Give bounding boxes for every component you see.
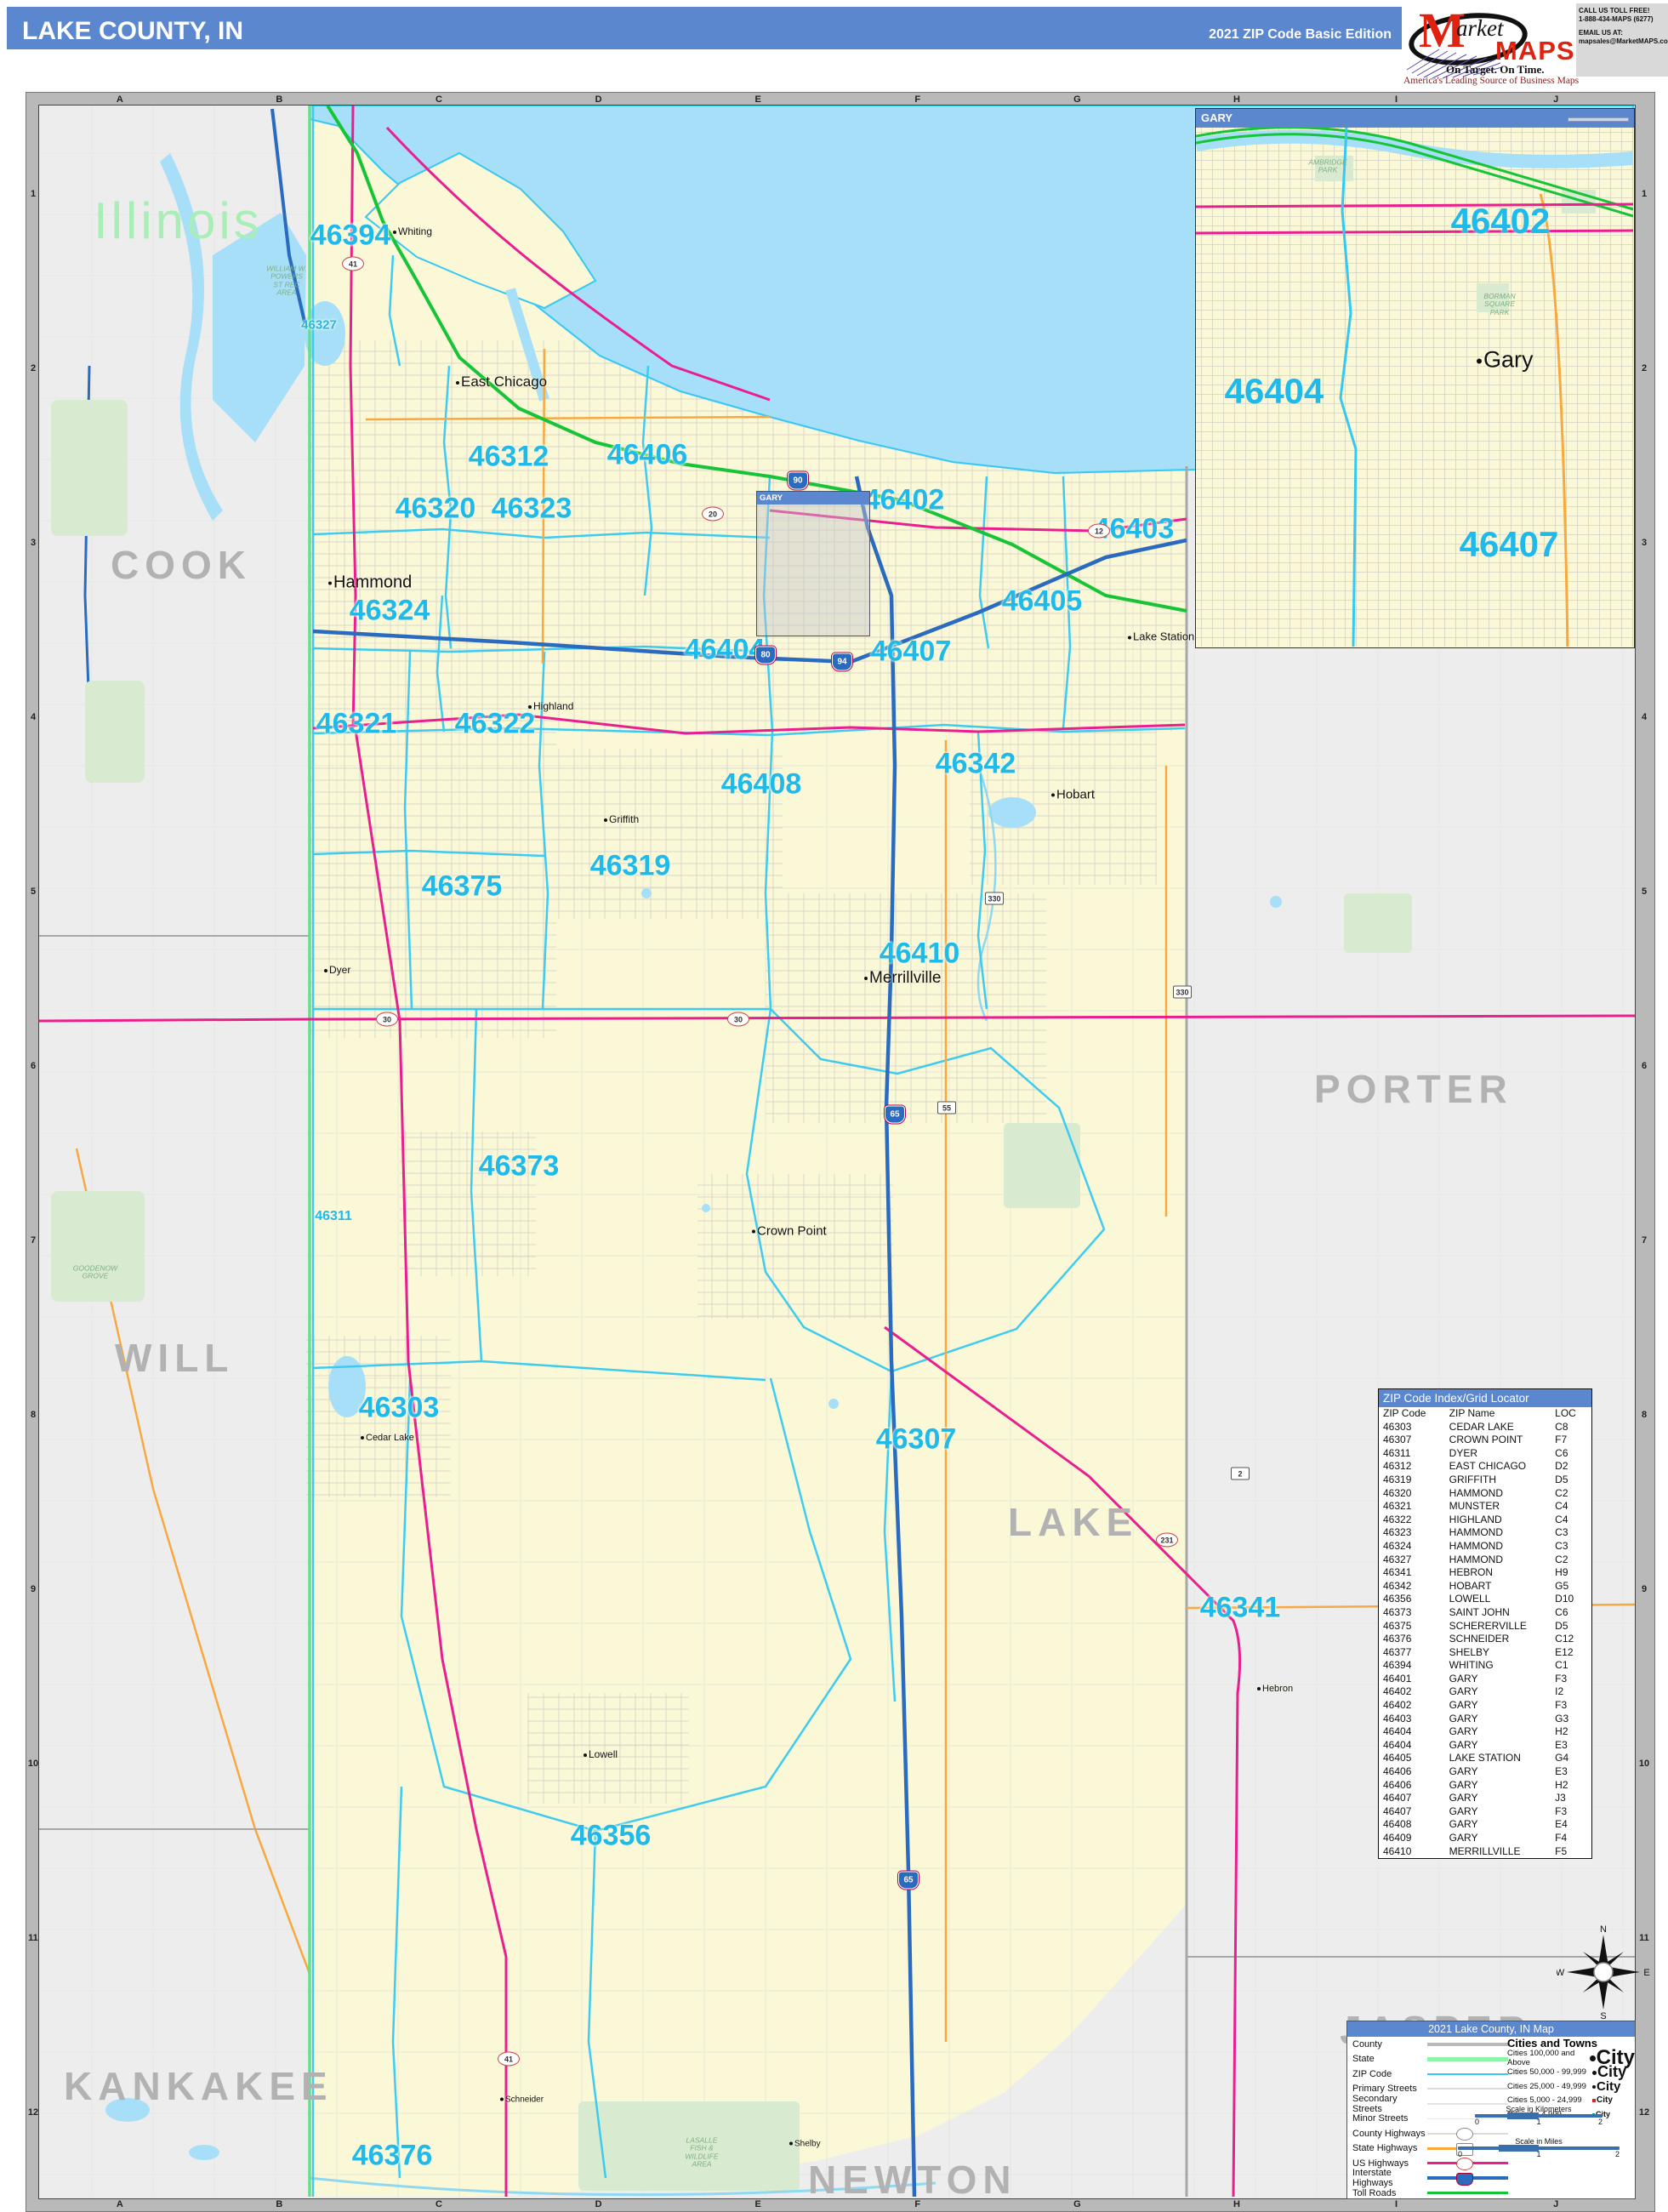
compass-e: E — [1643, 1968, 1649, 1978]
us-route-icon: 20 — [702, 507, 724, 522]
city-dot-icon — [789, 2142, 793, 2146]
zip-code-label: 46402 — [864, 484, 945, 517]
legend-state-hwy: State Highways — [1352, 2143, 1427, 2153]
state-line-icon — [1427, 2057, 1508, 2061]
logo-subtitle: America's Leading Source of Business Map… — [1403, 76, 1579, 86]
gary-inset-map: GARY 464024640446407 AMBRIDGE PARKBORMAN… — [1195, 108, 1635, 648]
city-label: Highland — [528, 700, 573, 712]
grid-number: 6 — [1634, 978, 1654, 1153]
city-label: Hammond — [328, 573, 412, 593]
city-dot-icon — [1477, 358, 1482, 363]
city-label: Dyer — [324, 964, 350, 976]
contact-email-label: EMAIL US AT: — [1579, 29, 1668, 37]
compass-rose: N S W E — [1557, 1924, 1650, 2020]
grid-letter: C — [359, 2198, 519, 2211]
table-row: 46406 GARY E3 — [1379, 1765, 1591, 1779]
inset-park-label: BORMAN SQUARE PARK — [1483, 293, 1515, 316]
zip-code-label: 46319 — [590, 850, 671, 883]
zip-code-label: 46341 — [1200, 1592, 1281, 1625]
grid-letter: A — [40, 2198, 200, 2211]
grid-letter: H — [1157, 2198, 1317, 2211]
city-dot-icon — [1257, 1687, 1261, 1690]
city-dot-icon — [324, 969, 327, 972]
table-row: 46377 SHELBY E12 — [1379, 1646, 1591, 1660]
interstate-shield-icon: 65 — [898, 1872, 919, 1890]
inset-title-bar: GARY — [1196, 109, 1634, 128]
table-row: 46324 HAMMOND C3 — [1379, 1540, 1591, 1554]
table-row: 46373 SAINT JOHN C6 — [1379, 1606, 1591, 1620]
grid-letter: D — [519, 2198, 679, 2211]
zip-code-label: 46321 — [316, 708, 397, 741]
table-row: 46322 HIGHLAND C4 — [1379, 1514, 1591, 1527]
scalebar-mi: Scale in Miles 012 — [1458, 2137, 1620, 2158]
legend-county: County — [1352, 2039, 1427, 2050]
zip-code-label: 46406 — [607, 439, 688, 472]
city-label: Lake Station — [1128, 630, 1194, 643]
table-row: 46341 HEBRON H9 — [1379, 1566, 1591, 1580]
park-label: GOODENOW GROVE — [73, 1265, 117, 1281]
zip-code-label: 46373 — [479, 1150, 560, 1183]
grid-letter: B — [200, 2198, 360, 2211]
legend-toll: Toll Roads — [1352, 2188, 1427, 2198]
city-dot-icon — [752, 1230, 755, 1234]
county-line-icon — [1427, 2043, 1508, 2046]
grid-number: 6 — [26, 978, 40, 1153]
grid-letter: H — [1157, 93, 1317, 106]
table-row: 46404 GARY H2 — [1379, 1725, 1591, 1739]
table-row: 46303 CEDAR LAKE C8 — [1379, 1421, 1591, 1434]
inset-city-label: Gary — [1477, 347, 1534, 373]
city-dot-icon — [393, 231, 396, 234]
gary-callout-title: GARY — [757, 492, 869, 505]
city-dot-icon — [604, 818, 607, 822]
page-title: LAKE COUNTY, IN — [22, 17, 243, 46]
inset-title: GARY — [1201, 111, 1232, 124]
county-hwy-icon — [1427, 2133, 1508, 2135]
table-row: 46402 GARY F3 — [1379, 1699, 1591, 1713]
zip-line-icon — [1427, 2073, 1508, 2075]
grid-number: 2 — [1634, 281, 1654, 455]
city-label: Lowell — [584, 1748, 618, 1760]
cities-25k-sample: City — [1592, 2079, 1620, 2094]
grid-letter: C — [359, 93, 519, 106]
zip-code-label: 46323 — [492, 493, 572, 526]
zip-index-title: ZIP Code Index/Grid Locator — [1379, 1389, 1591, 1407]
city-dot-icon — [528, 705, 532, 709]
state-route-icon: 330 — [985, 892, 1004, 905]
zip-index-table: ZIP Code Index/Grid Locator ZIP Code ZIP… — [1378, 1388, 1592, 1859]
edition-label: 2021 ZIP Code Basic Edition — [1209, 27, 1392, 43]
grid-number: 5 — [26, 804, 40, 978]
city-label: Merrillville — [864, 969, 941, 988]
state-route-icon: 330 — [1173, 986, 1192, 999]
grid-numbers-left: 123456789101112 — [26, 106, 40, 2199]
scalebar-km-bar — [1475, 2114, 1603, 2118]
contact-phone: 1-888-434-MAPS (6277) — [1579, 15, 1668, 24]
grid-number: 10 — [26, 1676, 40, 1850]
table-row: 46404 GARY E3 — [1379, 1739, 1591, 1753]
zip-index-header: ZIP Code ZIP Name LOC — [1379, 1407, 1591, 1421]
zip-code-label: 46312 — [469, 441, 549, 474]
grid-letters-top: ABCDEFGHIJ — [40, 93, 1636, 106]
table-row: 46375 SCHERERVILLE D5 — [1379, 1620, 1591, 1633]
grid-number: 12 — [26, 2025, 40, 2199]
legend-county-hwy: County Highways — [1352, 2129, 1427, 2139]
grid-letter: F — [838, 93, 998, 106]
city-label: Hebron — [1257, 1684, 1293, 1694]
table-row: 46321 MUNSTER C4 — [1379, 1500, 1591, 1514]
city-dot-icon — [1128, 636, 1131, 639]
city-label: Crown Point — [752, 1224, 827, 1239]
inset-park-label: AMBRIDGE PARK — [1308, 159, 1346, 175]
zip-code-label: 46375 — [422, 870, 503, 904]
city-label: Shelby — [789, 2140, 821, 2149]
zip-code-label: 46303 — [359, 1392, 440, 1425]
gary-inset-callout: GARY — [756, 491, 870, 636]
table-row: 46320 HAMMOND C2 — [1379, 1487, 1591, 1501]
interstate-shield-icon: 90 — [788, 472, 808, 490]
grid-number: 10 — [1634, 1676, 1654, 1850]
map-legend: 2021 Lake County, IN Map County State ZI… — [1346, 2021, 1636, 2199]
table-row: 46312 EAST CHICAGO D2 — [1379, 1460, 1591, 1474]
city-label: Hobart — [1051, 788, 1095, 802]
city-dot-icon — [361, 1436, 364, 1440]
zip-code-label: 46376 — [352, 2140, 433, 2173]
grid-letter: F — [838, 2198, 998, 2211]
legend-zip: ZIP Code — [1352, 2069, 1427, 2079]
table-row: 46319 GRIFFITH D5 — [1379, 1474, 1591, 1487]
table-row: 46401 GARY F3 — [1379, 1673, 1591, 1686]
primary-line-icon — [1427, 2088, 1508, 2089]
grid-number: 9 — [26, 1502, 40, 1676]
grid-letter: D — [519, 93, 679, 106]
grid-number: 9 — [1634, 1502, 1654, 1676]
grid-number: 1 — [1634, 106, 1654, 281]
legend-minor: Minor Streets — [1352, 2113, 1427, 2124]
legend-us-hwy: US Highways — [1352, 2158, 1427, 2169]
grid-number: 12 — [1634, 2025, 1654, 2199]
table-row: 46405 LAKE STATION G4 — [1379, 1752, 1591, 1765]
cities-5k-label: Cities 5,000 - 24,999 — [1507, 2095, 1592, 2105]
grid-number: 1 — [26, 106, 40, 281]
state-route-icon: 2 — [1231, 1468, 1250, 1480]
grid-number: 2 — [26, 281, 40, 455]
grid-letter: B — [200, 93, 360, 106]
cities-25k-label: Cities 25,000 - 49,999 — [1507, 2082, 1592, 2091]
zip-index-rows: 46303 CEDAR LAKE C8 46307 CROWN POINT F7… — [1379, 1421, 1591, 1859]
grid-letter: G — [998, 2198, 1158, 2211]
park-label: WILLIAM W. POWERS ST REC AREA — [266, 265, 306, 296]
us-route-icon: 30 — [727, 1012, 749, 1027]
interstate-shield-icon: 80 — [755, 647, 776, 664]
grid-number: 5 — [1634, 804, 1654, 978]
cities-100k-label: Cities 100,000 and Above — [1507, 2049, 1590, 2067]
table-row: 46307 CROWN POINT F7 — [1379, 1434, 1591, 1447]
zip-code-label: 46327 — [301, 318, 337, 333]
zip-code-label: 46410 — [880, 938, 960, 971]
zip-code-label: 46324 — [350, 595, 430, 628]
inset-zip-label: 46404 — [1225, 371, 1324, 412]
col-loc: LOC — [1555, 1407, 1587, 1421]
us-route-icon: 41 — [342, 257, 364, 271]
table-row: 46408 GARY E4 — [1379, 1818, 1591, 1832]
scalebar-mi-bar — [1458, 2146, 1620, 2150]
inset-zip-label: 46407 — [1460, 524, 1559, 565]
cities-5k-sample: City — [1592, 2095, 1613, 2105]
col-zip-code: ZIP Code — [1383, 1407, 1449, 1421]
interstate-shield-icon: 65 — [885, 1106, 905, 1124]
city-label: East Chicago — [456, 373, 547, 391]
compass-n: N — [1600, 1924, 1607, 1935]
table-row: 46311 DYER C6 — [1379, 1447, 1591, 1461]
us-hwy-icon — [1427, 2162, 1508, 2164]
zip-code-label: 46307 — [876, 1423, 957, 1457]
city-dot-icon — [500, 2098, 504, 2101]
scalebar-km: Scale in Kilometers 012 — [1475, 2105, 1603, 2126]
table-row: 46407 GARY J3 — [1379, 1792, 1591, 1805]
grid-letter: G — [998, 93, 1158, 106]
zip-code-label: 46356 — [571, 1820, 652, 1853]
table-row: 46342 HOBART G5 — [1379, 1580, 1591, 1593]
grid-number: 4 — [26, 630, 40, 804]
table-row: 46410 MERRILLVILLE F5 — [1379, 1845, 1591, 1859]
legend-title: 2021 Lake County, IN Map — [1347, 2021, 1635, 2037]
legend-state: State — [1352, 2054, 1427, 2064]
grid-number: 8 — [26, 1327, 40, 1502]
zip-code-label: 46407 — [871, 636, 952, 669]
us-route-icon: 12 — [1088, 524, 1110, 539]
table-row: 46323 HAMMOND C3 — [1379, 1526, 1591, 1540]
grid-number: 8 — [1634, 1327, 1654, 1502]
city-dot-icon — [584, 1753, 587, 1757]
table-row: 46403 GARY G3 — [1379, 1713, 1591, 1726]
zip-code-label: 46408 — [721, 768, 802, 801]
toll-line-icon — [1427, 2192, 1508, 2194]
grid-number: 4 — [1634, 630, 1654, 804]
zip-code-label: 46405 — [1002, 585, 1083, 619]
title-bar: LAKE COUNTY, IN 2021 ZIP Code Basic Edit… — [7, 7, 1402, 49]
compass-star-icon — [1567, 1935, 1640, 2010]
logo-tagline: On Target. On Time. — [1446, 63, 1544, 77]
grid-number: 7 — [1634, 1153, 1654, 1327]
col-zip-name: ZIP Name — [1449, 1407, 1555, 1421]
inset-scalebar — [1568, 113, 1627, 122]
legend-secondary: Secondary Streets — [1352, 2094, 1427, 2114]
zip-code-label: 46320 — [396, 493, 476, 526]
contact-box: CALL US TOLL FREE! 1-888-434-MAPS (6277)… — [1576, 3, 1668, 77]
interstate-icon — [1427, 2176, 1508, 2180]
logo-maps: MAPS — [1495, 36, 1575, 66]
table-row: 46406 GARY H2 — [1379, 1779, 1591, 1793]
interstate-shield-icon: 94 — [832, 653, 852, 671]
grid-letter: I — [1317, 93, 1477, 106]
park-label: LASALLE FISH & WILDLIFE AREA — [685, 2136, 718, 2168]
city-dot-icon — [328, 581, 332, 584]
grid-numbers-right: 123456789101112 — [1634, 106, 1654, 2199]
grid-number: 7 — [26, 1153, 40, 1327]
city-label: Griffith — [604, 813, 639, 825]
grid-letter: E — [678, 2198, 838, 2211]
cities-50k-label: Cities 50,000 - 99,999 — [1507, 2067, 1592, 2077]
legend-primary: Primary Streets — [1352, 2084, 1427, 2094]
table-row: 46356 LOWELL D10 — [1379, 1593, 1591, 1606]
compass-w: W — [1557, 1968, 1565, 1978]
grid-letter: J — [1476, 93, 1636, 106]
us-route-icon: 41 — [498, 2052, 520, 2067]
compass-s: S — [1600, 2011, 1606, 2020]
zip-code-label: 46394 — [310, 219, 391, 253]
contact-email: mapsales@MarketMAPS.com — [1579, 37, 1668, 46]
city-label: Schneider — [500, 2095, 544, 2105]
us-route-icon: 231 — [1156, 1533, 1178, 1548]
city-label: Whiting — [393, 225, 432, 237]
legend-interstate: Interstate Highways — [1352, 2168, 1427, 2188]
zip-code-label: 46322 — [455, 708, 536, 741]
table-row: 46407 GARY F3 — [1379, 1805, 1591, 1819]
grid-number: 3 — [1634, 455, 1654, 630]
grid-number: 3 — [26, 455, 40, 630]
us-route-icon: 30 — [376, 1012, 398, 1027]
table-row: 46394 WHITING C1 — [1379, 1659, 1591, 1673]
grid-letter: E — [678, 93, 838, 106]
zip-code-label: 46311 — [315, 1209, 352, 1224]
city-label: Cedar Lake — [361, 1433, 414, 1443]
table-row: 46402 GARY I2 — [1379, 1685, 1591, 1699]
marketmaps-logo: M arket MAPS On Target. On Time. America… — [1403, 0, 1578, 85]
table-row: 46327 HAMMOND C2 — [1379, 1554, 1591, 1567]
grid-number: 11 — [26, 1850, 40, 2025]
zip-code-label: 46342 — [936, 748, 1016, 781]
state-route-icon: 55 — [937, 1102, 956, 1115]
table-row: 46376 SCHNEIDER C12 — [1379, 1633, 1591, 1646]
grid-letter: A — [40, 93, 200, 106]
table-row: 46409 GARY F4 — [1379, 1832, 1591, 1845]
city-dot-icon — [864, 977, 868, 980]
zip-code-label: 46404 — [685, 634, 766, 667]
city-dot-icon — [456, 381, 459, 385]
contact-call-label: CALL US TOLL FREE! — [1579, 7, 1668, 15]
inset-zip-label: 46402 — [1451, 201, 1551, 242]
city-dot-icon — [1051, 794, 1055, 797]
